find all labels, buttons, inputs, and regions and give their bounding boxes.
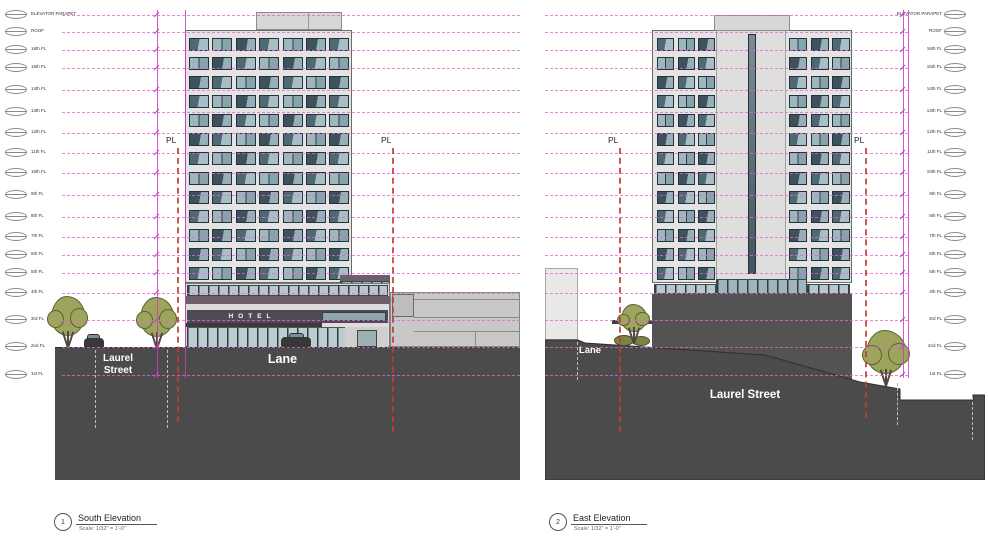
level-label: ELEVATOR PARAPET — [31, 12, 76, 17]
east-laurel-street-label: Laurel Street — [685, 389, 805, 402]
window — [329, 152, 349, 165]
south-title-number: 1 — [54, 513, 72, 531]
level-datum-icon — [944, 10, 966, 19]
level-label: 15th FL — [868, 65, 942, 70]
window — [236, 114, 256, 127]
window — [329, 191, 349, 204]
level-datum-icon — [5, 128, 27, 137]
level-datum-icon — [944, 148, 966, 157]
floor-gridline — [62, 173, 520, 174]
south-lane-label: Lane — [245, 352, 320, 366]
floor-gridline — [545, 255, 908, 256]
level-datum-icon — [5, 342, 27, 351]
window — [811, 114, 829, 127]
window — [329, 76, 349, 89]
window — [189, 229, 209, 242]
floor-gridline — [62, 320, 520, 321]
level-label: 12th FL — [868, 130, 942, 135]
window — [189, 191, 209, 204]
window — [236, 133, 256, 146]
window — [789, 229, 807, 242]
south-laurel-street-label: Laurel Street — [88, 353, 148, 376]
window — [657, 38, 674, 51]
level-datum-icon — [5, 63, 27, 72]
window — [811, 229, 829, 242]
floor-gridline — [62, 133, 520, 134]
level-datum-icon — [944, 250, 966, 259]
south-pl-left-line — [177, 148, 179, 422]
window — [698, 114, 715, 127]
level-datum-icon — [5, 10, 27, 19]
tree-icon — [47, 310, 64, 328]
level-label: 7th FL — [31, 234, 44, 239]
window — [832, 152, 850, 165]
south-entry-canopy — [185, 323, 322, 327]
window — [698, 95, 715, 108]
window — [678, 152, 695, 165]
level-datum-icon — [944, 45, 966, 54]
east-ave-label: W 8th Ave — [903, 391, 967, 402]
window — [236, 191, 256, 204]
level-label: 13th FL — [868, 109, 942, 114]
window — [832, 114, 850, 127]
window — [259, 38, 279, 51]
window — [811, 152, 829, 165]
south-street-edge-right — [167, 350, 168, 428]
floor-gridline — [62, 347, 520, 348]
level-label: 3rd FL — [868, 317, 942, 322]
window — [189, 76, 209, 89]
south-neighbor-line-2 — [414, 317, 520, 318]
floor-gridline — [545, 90, 908, 91]
floor-gridline — [62, 112, 520, 113]
dimension-line — [185, 10, 186, 378]
floor-gridline — [545, 68, 908, 69]
window — [811, 191, 829, 204]
window — [329, 95, 349, 108]
window — [259, 152, 279, 165]
window — [789, 114, 807, 127]
south-ground-floor-door — [357, 330, 377, 347]
window — [189, 95, 209, 108]
east-ave-edge-right — [972, 397, 973, 440]
level-label: 11th FL — [31, 150, 46, 155]
window — [259, 191, 279, 204]
floor-gridline — [545, 112, 908, 113]
level-datum-icon — [944, 85, 966, 94]
level-datum-icon — [5, 288, 27, 297]
level-label: 14th FL — [31, 87, 46, 92]
window — [259, 229, 279, 242]
window — [259, 133, 279, 146]
level-datum-icon — [5, 168, 27, 177]
window — [678, 133, 695, 146]
floor-gridline — [62, 68, 520, 69]
level-datum-icon — [944, 370, 966, 379]
window — [306, 229, 326, 242]
floor-gridline — [545, 32, 908, 33]
floor-gridline — [545, 15, 908, 16]
level-label: 9th FL — [31, 192, 44, 197]
floor-gridline — [545, 237, 908, 238]
level-datum-icon — [944, 107, 966, 116]
tree-icon — [159, 309, 178, 329]
floor-gridline — [62, 255, 520, 256]
south-pl-left-label: PL — [166, 135, 176, 145]
window — [789, 95, 807, 108]
floor-gridline — [545, 195, 908, 196]
south-neighbor-line-3 — [414, 331, 520, 332]
window — [698, 133, 715, 146]
window — [657, 95, 674, 108]
floor-gridline — [545, 273, 908, 274]
elevation-sheet: HOTEL Laurel Street Lane PL PL 1 South E… — [0, 0, 988, 548]
level-label: ROOF — [31, 29, 44, 34]
south-pl-right-line — [392, 148, 394, 432]
window — [329, 38, 349, 51]
south-pl-right-label: PL — [381, 135, 391, 145]
window — [259, 76, 279, 89]
window — [657, 191, 674, 204]
east-glazing-band-center — [716, 279, 807, 294]
window — [832, 191, 850, 204]
level-label: 8th FL — [868, 214, 942, 219]
level-label: 3rd FL — [31, 317, 44, 322]
south-podium-glazing-band — [187, 285, 388, 296]
window — [283, 133, 303, 146]
window — [212, 95, 232, 108]
window — [698, 38, 715, 51]
level-label: 6th FL — [31, 252, 44, 257]
window — [678, 191, 695, 204]
window — [236, 76, 256, 89]
window — [283, 152, 303, 165]
floor-gridline — [62, 293, 520, 294]
floor-gridline — [62, 50, 520, 51]
window — [811, 133, 829, 146]
window — [329, 229, 349, 242]
window — [212, 191, 232, 204]
window — [678, 95, 695, 108]
level-datum-icon — [5, 268, 27, 277]
east-pl-right-line — [865, 148, 867, 418]
window — [212, 133, 232, 146]
window — [832, 38, 850, 51]
window — [832, 229, 850, 242]
floor-gridline — [62, 15, 520, 16]
window — [189, 38, 209, 51]
level-datum-icon — [5, 232, 27, 241]
floor-gridline — [62, 273, 520, 274]
south-title-name: South Elevation — [76, 513, 157, 525]
window — [306, 38, 326, 51]
window — [789, 133, 807, 146]
window — [283, 76, 303, 89]
window — [259, 95, 279, 108]
window — [678, 229, 695, 242]
floor-gridline — [545, 320, 908, 321]
window — [811, 95, 829, 108]
window — [789, 38, 807, 51]
level-datum-icon — [5, 85, 27, 94]
level-datum-icon — [944, 128, 966, 137]
east-pl-right-label: PL — [854, 135, 864, 145]
level-label: 4th FL — [31, 290, 44, 295]
east-core-slot — [748, 34, 756, 274]
level-label: 5th FL — [868, 270, 942, 275]
window — [698, 76, 715, 89]
window — [657, 76, 674, 89]
level-label: 10th FL — [31, 170, 46, 175]
window — [698, 229, 715, 242]
level-datum-icon — [5, 107, 27, 116]
level-datum-icon — [5, 315, 27, 324]
window — [283, 114, 303, 127]
east-title-name: East Elevation — [571, 513, 647, 525]
level-label: ELEVATOR PARAPET — [868, 12, 942, 17]
east-ground — [545, 330, 985, 480]
level-datum-icon — [944, 342, 966, 351]
level-datum-icon — [5, 250, 27, 259]
window — [236, 152, 256, 165]
window — [236, 38, 256, 51]
level-label: 9th FL — [868, 192, 942, 197]
level-label: 1st FL — [868, 372, 942, 377]
window — [657, 152, 674, 165]
east-roof-penthouse — [714, 15, 790, 31]
window — [283, 38, 303, 51]
window — [306, 114, 326, 127]
east-pl-left-label: PL — [608, 135, 618, 145]
south-neighbor-roof-box — [392, 294, 414, 317]
floor-gridline — [545, 153, 908, 154]
window — [189, 114, 209, 127]
level-label: 8th FL — [31, 214, 44, 219]
tree-icon — [70, 308, 89, 328]
dimension-line — [903, 10, 904, 378]
floor-gridline — [545, 375, 908, 376]
level-label: 5th FL — [31, 270, 44, 275]
window — [212, 76, 232, 89]
east-ave-edge-left — [897, 383, 898, 425]
floor-gridline — [62, 217, 520, 218]
window — [657, 114, 674, 127]
dimension-line — [157, 10, 158, 378]
level-label: 2nd FL — [868, 344, 942, 349]
laurel-line2: Street — [104, 365, 132, 376]
level-datum-icon — [5, 45, 27, 54]
window — [212, 38, 232, 51]
south-storefront — [187, 327, 345, 347]
window — [212, 152, 232, 165]
window — [678, 114, 695, 127]
level-label: 13th FL — [31, 109, 46, 114]
level-label: 11th FL — [868, 150, 942, 155]
window — [698, 191, 715, 204]
level-label: ROOF — [868, 29, 942, 34]
level-label: 7th FL — [868, 234, 942, 239]
window — [306, 133, 326, 146]
dimension-line — [908, 10, 909, 378]
floor-gridline — [545, 133, 908, 134]
floor-gridline — [545, 217, 908, 218]
level-label: 12th FL — [31, 130, 46, 135]
window — [832, 76, 850, 89]
level-label: 4th FL — [868, 290, 942, 295]
window — [811, 38, 829, 51]
window — [832, 133, 850, 146]
level-datum-icon — [944, 232, 966, 241]
level-label: 2nd FL — [31, 344, 45, 349]
window — [789, 152, 807, 165]
level-label: 10th FL — [868, 170, 942, 175]
hotel-sign: HOTEL — [187, 310, 317, 323]
level-datum-icon — [5, 370, 27, 379]
level-datum-icon — [5, 27, 27, 36]
level-datum-icon — [944, 288, 966, 297]
level-datum-icon — [944, 212, 966, 221]
east-pl-left-line — [619, 148, 621, 432]
window — [306, 152, 326, 165]
window — [306, 76, 326, 89]
level-datum-icon — [944, 268, 966, 277]
window — [259, 114, 279, 127]
window — [283, 95, 303, 108]
east-title-number: 2 — [549, 513, 567, 531]
window — [811, 76, 829, 89]
level-label: 1st FL — [31, 372, 44, 377]
level-datum-icon — [944, 27, 966, 36]
east-title-scale: Scale: 1/32" = 1'-0" — [574, 526, 621, 532]
window — [212, 229, 232, 242]
car-icon — [281, 337, 311, 347]
floor-gridline — [62, 32, 520, 33]
floor-gridline — [62, 195, 520, 196]
window — [832, 95, 850, 108]
level-datum-icon — [944, 168, 966, 177]
window — [283, 191, 303, 204]
level-label: 14th FL — [868, 87, 942, 92]
window — [329, 133, 349, 146]
level-label: 6th FL — [868, 252, 942, 257]
window — [283, 229, 303, 242]
level-label: 15th FL — [31, 65, 46, 70]
floor-gridline — [545, 173, 908, 174]
level-datum-icon — [944, 63, 966, 72]
window — [189, 152, 209, 165]
window — [678, 76, 695, 89]
window — [789, 76, 807, 89]
window — [236, 229, 256, 242]
window — [657, 229, 674, 242]
floor-gridline — [545, 50, 908, 51]
level-label: 16th FL — [31, 47, 46, 52]
level-datum-icon — [5, 190, 27, 199]
level-datum-icon — [944, 315, 966, 324]
window — [236, 95, 256, 108]
south-neighbor-divider — [475, 331, 476, 347]
window — [212, 114, 232, 127]
window — [698, 152, 715, 165]
floor-gridline — [62, 90, 520, 91]
laurel-line1: Laurel — [103, 353, 133, 364]
level-datum-icon — [5, 148, 27, 157]
window — [306, 95, 326, 108]
level-datum-icon — [944, 190, 966, 199]
window — [329, 114, 349, 127]
east-lane-label: Lane — [572, 346, 608, 357]
south-podium-mauve-band — [185, 296, 390, 304]
floor-gridline — [545, 293, 908, 294]
floor-gridline — [62, 237, 520, 238]
window — [657, 133, 674, 146]
window — [306, 191, 326, 204]
window — [189, 133, 209, 146]
window — [678, 38, 695, 51]
level-datum-icon — [5, 212, 27, 221]
window — [789, 191, 807, 204]
level-label: 16th FL — [868, 47, 942, 52]
south-title-scale: Scale: 1/32" = 1'-0" — [79, 526, 126, 532]
floor-gridline — [62, 153, 520, 154]
